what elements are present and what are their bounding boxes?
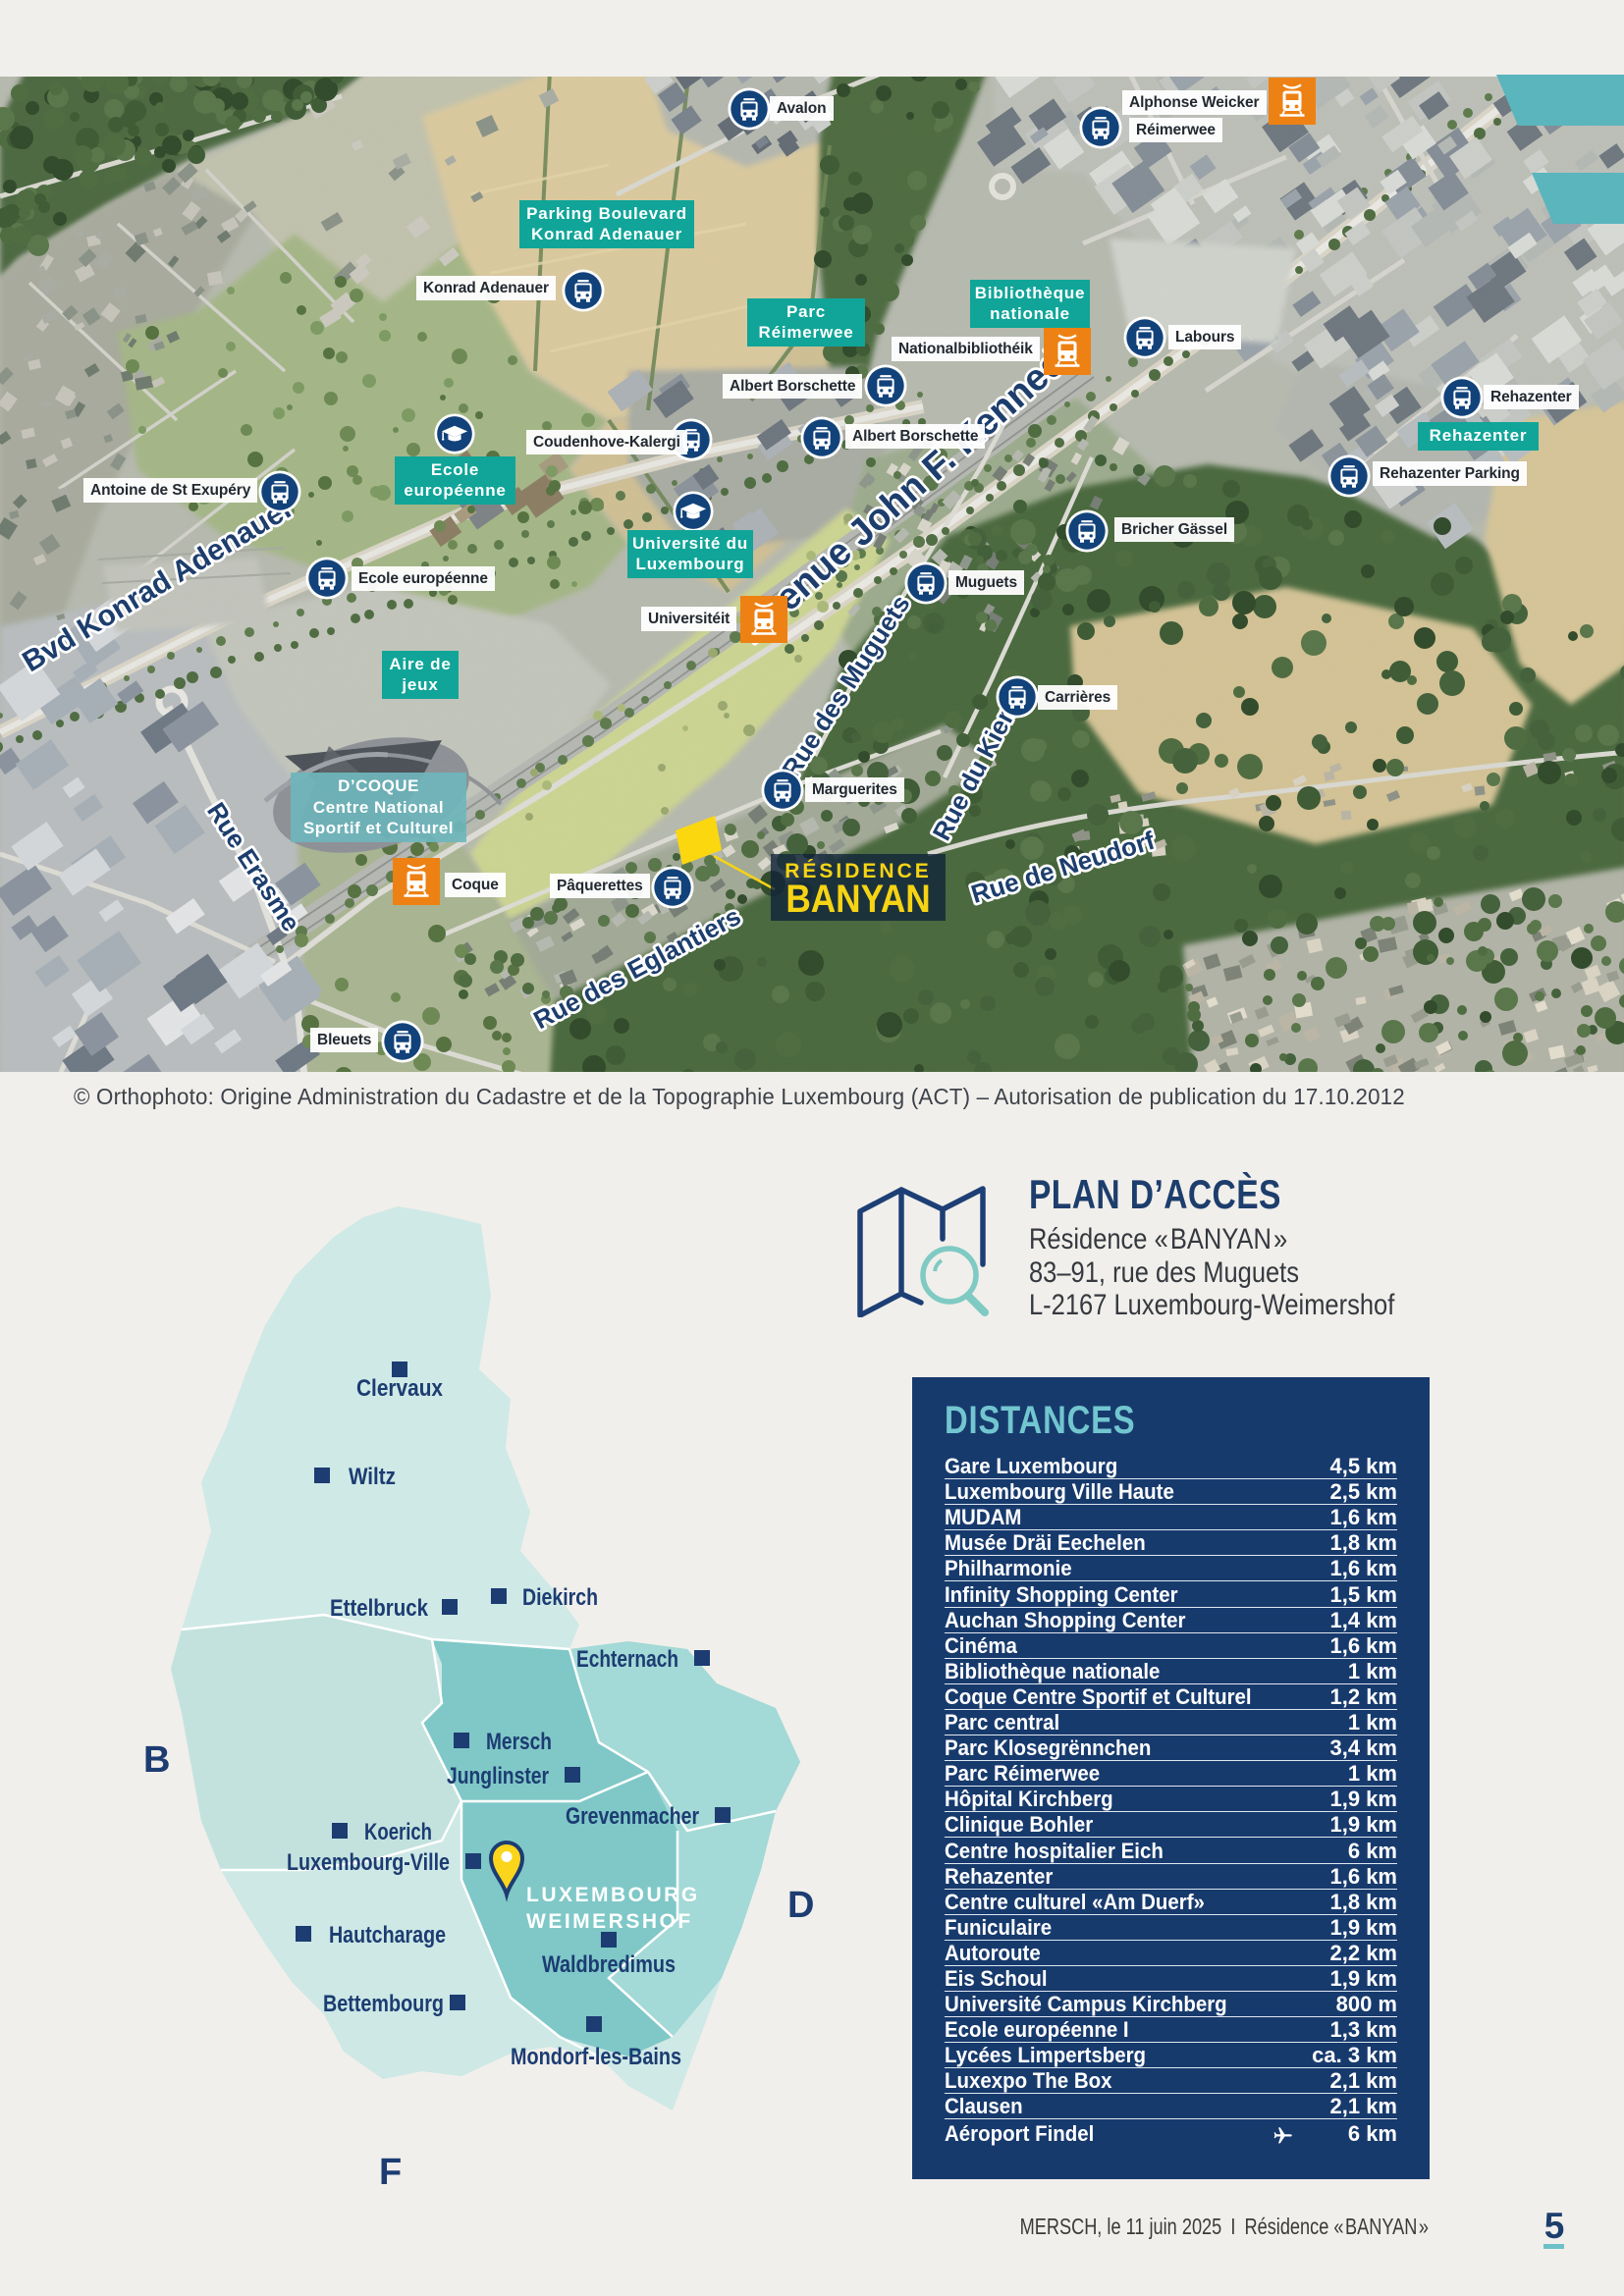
svg-text:Echternach: Echternach: [576, 1646, 678, 1673]
svg-text:Diekirch: Diekirch: [522, 1584, 598, 1611]
svg-text:Luxembourg-Ville: Luxembourg-Ville: [287, 1849, 450, 1876]
svg-text:Hautcharage: Hautcharage: [329, 1922, 446, 1949]
svg-text:Clervaux: Clervaux: [356, 1375, 444, 1402]
svg-text:Wiltz: Wiltz: [349, 1464, 396, 1490]
svg-text:Ettelbruck: Ettelbruck: [330, 1595, 429, 1622]
svg-text:LUXEMBOURG: LUXEMBOURG: [526, 1884, 700, 1906]
svg-text:Waldbredimus: Waldbredimus: [542, 1951, 676, 1978]
svg-text:Koerich: Koerich: [364, 1819, 432, 1845]
svg-text:WEIMERSHOF: WEIMERSHOF: [526, 1910, 693, 1933]
svg-text:Bettembourg: Bettembourg: [323, 1991, 444, 2017]
svg-text:Mondorf-les-Bains: Mondorf-les-Bains: [511, 2044, 681, 2070]
svg-text:D: D: [787, 1885, 814, 1926]
svg-text:Grevenmacher: Grevenmacher: [566, 1803, 699, 1830]
svg-text:Junglinster: Junglinster: [447, 1763, 549, 1789]
svg-text:Mersch: Mersch: [486, 1729, 552, 1755]
svg-text:F: F: [379, 2152, 402, 2193]
svg-text:B: B: [143, 1739, 170, 1781]
